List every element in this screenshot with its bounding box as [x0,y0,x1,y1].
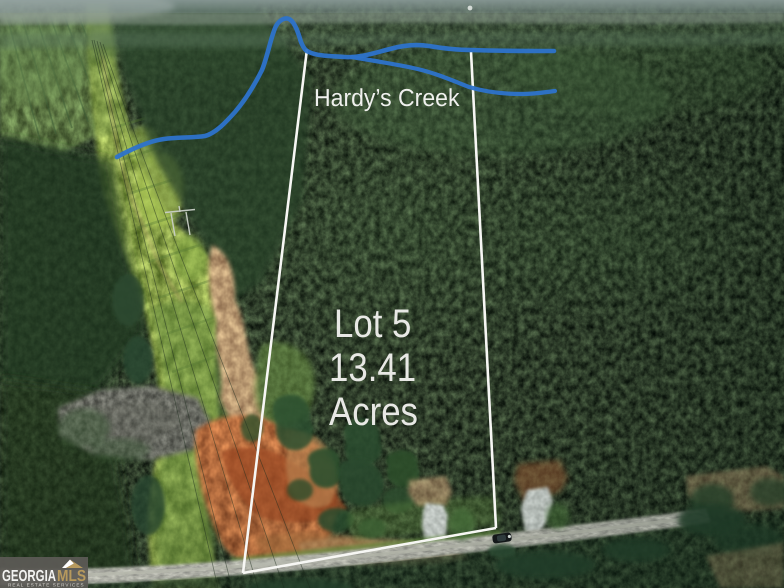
svg-text:Acres: Acres [329,390,418,434]
svg-text:REAL ESTATE SERVICES: REAL ESTATE SERVICES [8,583,85,588]
svg-text:Hardy’s Creek: Hardy’s Creek [314,85,460,112]
svg-text:Lot 5: Lot 5 [334,302,411,346]
svg-text:13.41: 13.41 [329,346,416,390]
